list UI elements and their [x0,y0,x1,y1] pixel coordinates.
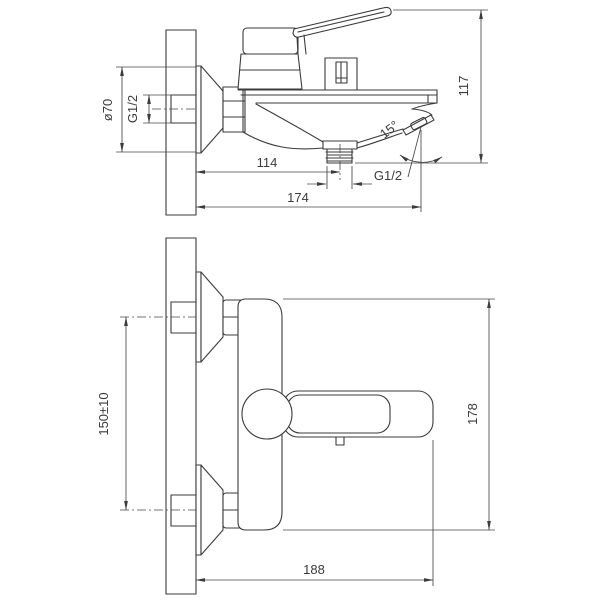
dim-label-outlet-thread: G1/2 [374,168,402,183]
front-view-drawing: 150±10 178 188 [96,238,495,594]
lever-bar [283,391,433,437]
dim-outlet-thread: G1/2 [307,166,402,189]
outlet-thread [326,149,353,163]
dim-outlet-offset: 114 [196,144,340,180]
dim-connection-centers: 150±10 [96,317,126,510]
lower-nipple [171,495,196,526]
dim-spout-height: 117 [355,10,488,163]
handle-lever-front [242,389,433,445]
handle-knob [242,389,292,439]
dim-label-flange-diameter: ø70 [100,99,115,121]
cartridge-housing [238,54,302,89]
dim-label-wall-thread: G1/2 [125,95,140,123]
side-view-drawing: ø70 G1/2 117 114 G1/2 [100,7,488,215]
dim-label-spout-angle: 15° [377,117,402,141]
spout [243,103,437,163]
dim-label-connection-centers: 150±10 [96,392,111,435]
dim-label-body-height: 178 [465,403,480,425]
upper-nipple [171,302,196,333]
drawing-sheet: ø70 G1/2 117 114 G1/2 [0,0,600,600]
wall-section-front [166,238,196,594]
diverter-knob [325,58,357,90]
faucet-technical-drawing: ø70 G1/2 117 114 G1/2 [0,0,600,600]
dim-label-outlet-offset: 114 [257,155,278,170]
handle-cap [243,28,298,54]
aerator-face [403,115,434,135]
escutcheon-side [196,66,245,153]
temperature-stop-tab [336,437,344,445]
dim-label-total-width: 188 [303,562,325,577]
handle-lever-side [238,7,391,89]
dim-label-total-reach: 174 [287,190,309,205]
dim-label-spout-height: 117 [456,76,471,97]
